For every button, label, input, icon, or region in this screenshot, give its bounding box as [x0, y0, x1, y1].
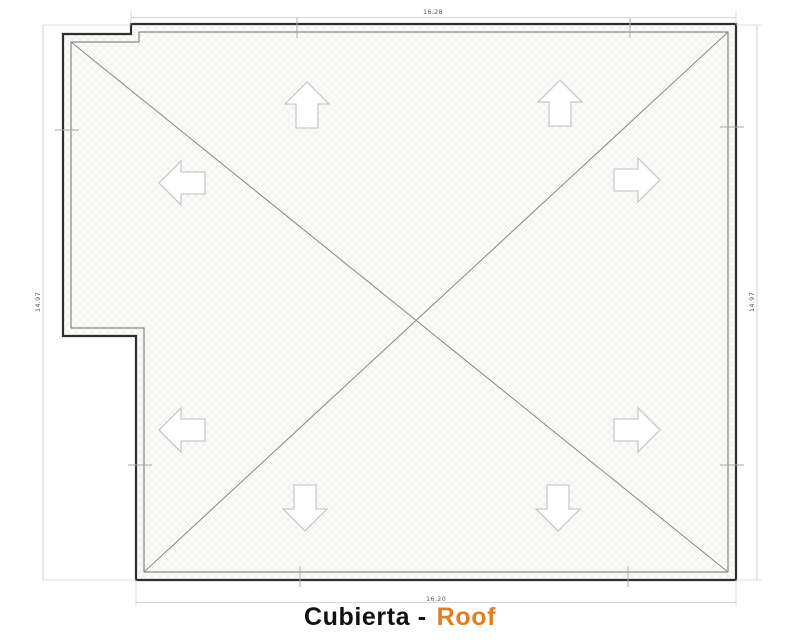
drawing-title: Cubierta -Roof: [0, 599, 800, 635]
dimension-top-label: 16.28: [423, 8, 443, 16]
dimension-right-label: 14.97: [748, 292, 756, 312]
dimension-left-label: 14.97: [34, 292, 42, 312]
drawing-title-accent: Roof: [437, 603, 496, 631]
roof-plan-drawing: 16.28 16.20 14.97 14.97: [0, 0, 800, 640]
roof-plan-page: 16.28 16.20 14.97 14.97 Cubierta -Roof: [0, 0, 800, 640]
drawing-title-main: Cubierta -: [304, 603, 427, 631]
